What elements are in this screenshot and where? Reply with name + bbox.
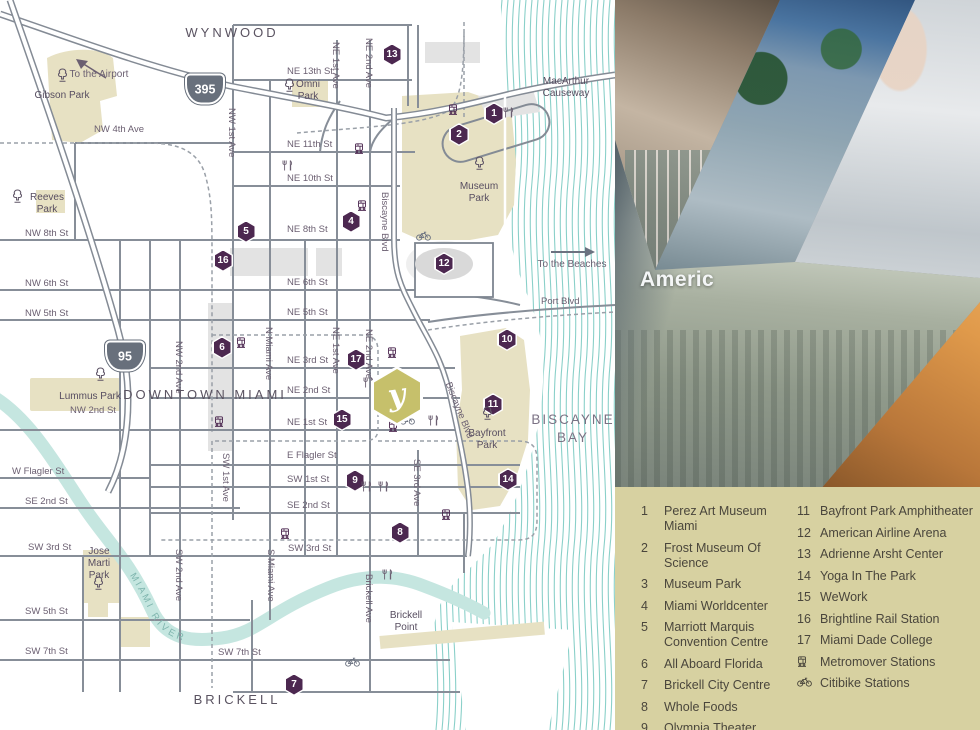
legend-item-number: 2 xyxy=(641,541,659,571)
legend-item-label: Yoga In The Park xyxy=(820,569,975,584)
legend-item-label: Miami Worldcenter xyxy=(664,599,791,614)
map-label: MacArthur Causeway xyxy=(543,76,590,100)
legend-column-2: 11Bayfront Park Amphitheater12American A… xyxy=(797,504,975,698)
restaurant-icon xyxy=(281,158,293,176)
map-label: SW 7th St xyxy=(218,648,261,659)
metromover-station-icon xyxy=(448,102,458,120)
interstate-395-shield: 395 xyxy=(185,74,225,105)
legend-item: 3Museum Park xyxy=(641,577,791,592)
map-label: BISCAYNE BAY xyxy=(531,411,614,447)
legend-item: 15WeWork xyxy=(797,590,975,605)
metromover-station-icon xyxy=(797,655,815,670)
legend-panel: 1Perez Art Museum Miami2Frost Museum Of … xyxy=(615,487,980,730)
park-tree-icon xyxy=(92,576,105,596)
map-label: Brickell Ave xyxy=(362,574,373,623)
citibike-icon xyxy=(797,676,815,691)
property-logo-glyph: y xyxy=(386,380,407,412)
map-label: Museum Park xyxy=(460,181,498,205)
map-label: To the Airport xyxy=(70,69,129,81)
legend-item: 6All Aboard Florida xyxy=(641,657,791,672)
map-label: WYNWOOD xyxy=(185,26,278,41)
legend-item-number: 11 xyxy=(797,504,815,519)
legend-item-label: Brickell City Centre xyxy=(664,678,791,693)
map-label: NE 6th St xyxy=(287,278,328,289)
miami-river xyxy=(0,396,484,640)
metromover-station-icon xyxy=(357,198,367,216)
legend-item-number: 3 xyxy=(641,577,659,592)
legend-column-1: 1Perez Art Museum Miami2Frost Museum Of … xyxy=(641,504,791,730)
legend-item: Citibike Stations xyxy=(797,676,975,691)
map-label: NE 3rd St xyxy=(287,356,328,367)
legend-item: Metromover Stations xyxy=(797,655,975,670)
map-label: SW 5th St xyxy=(25,607,68,618)
legend-item-label: Metromover Stations xyxy=(820,655,975,670)
legend-item-number: 1 xyxy=(641,504,659,534)
metromover-station-icon xyxy=(214,414,224,432)
map-label: SE 2nd St xyxy=(287,501,330,512)
legend-item-label: Whole Foods xyxy=(664,700,791,715)
legend-item-number: 15 xyxy=(797,590,815,605)
map-label: Biscayne Blvd xyxy=(378,192,389,252)
restaurant-icon xyxy=(377,479,389,497)
legend-item-number: 5 xyxy=(641,620,659,650)
restaurant-icon xyxy=(381,567,393,585)
map-label: NE 1st Ave xyxy=(329,327,340,374)
legend-item-number: 14 xyxy=(797,569,815,584)
map-label: SW 2nd Ave xyxy=(172,549,183,601)
map-label: NE 8th St xyxy=(287,225,328,236)
map-label: NE 11th St xyxy=(287,140,332,151)
map-label: NW 8th St xyxy=(25,229,68,240)
map-label: Omni Park xyxy=(296,79,320,103)
map-label: S Miami Ave xyxy=(264,549,275,602)
legend-item-number: 9 xyxy=(641,721,659,730)
legend-item-number: 7 xyxy=(641,678,659,693)
legend-item: 16Brightline Rail Station xyxy=(797,612,975,627)
map-label: NE 5th St xyxy=(287,308,328,319)
legend-item: 13Adrienne Arsht Center xyxy=(797,547,975,562)
map-label: NW 1st Ave xyxy=(225,108,236,157)
park-tree-icon xyxy=(56,68,69,88)
map-label: W Flagler St xyxy=(12,467,64,478)
park-tree-icon xyxy=(481,406,494,426)
map-label: Lummus Park xyxy=(59,391,121,403)
photo-collage: Americ xyxy=(615,0,980,490)
map-label: NE 1st St xyxy=(287,418,327,429)
metromover-station-icon xyxy=(236,335,246,353)
interstate-95-shield: 95 xyxy=(105,341,145,372)
legend-item-label: Adrienne Arsht Center xyxy=(820,547,975,562)
legend-item-number: 4 xyxy=(641,599,659,614)
legend-item-label: Citibike Stations xyxy=(820,676,975,691)
legend-item: 9Olympia Theater xyxy=(641,721,791,730)
legend-item: 7Brickell City Centre xyxy=(641,678,791,693)
map-label: Gibson Park xyxy=(34,90,89,102)
park-tree-icon xyxy=(473,156,486,176)
downtown-miami-map: MIAMI RIVER NE 13th StNE 11th StNE 10th … xyxy=(0,0,615,730)
restaurant-icon xyxy=(427,413,439,431)
legend-item: 2Frost Museum Of Science xyxy=(641,541,791,571)
legend-item: 11Bayfront Park Amphitheater xyxy=(797,504,975,519)
park-tree-icon xyxy=(11,189,24,209)
legend-item: 5Marriott Marquis Convention Centre xyxy=(641,620,791,650)
legend-item-number: 6 xyxy=(641,657,659,672)
map-label: NE 13th St xyxy=(287,67,333,78)
legend-item: 17Miami Dade College xyxy=(797,633,975,648)
legend-item-number: 8 xyxy=(641,700,659,715)
map-label: SE 3rd Ave xyxy=(410,459,421,506)
legend-item: 1Perez Art Museum Miami xyxy=(641,504,791,534)
legend-item-label: Olympia Theater xyxy=(664,721,791,730)
legend-item-number: 12 xyxy=(797,526,815,541)
map-label: N Miami Ave xyxy=(262,327,273,380)
legend-item-number: 17 xyxy=(797,633,815,648)
map-label: NE 2nd Ave xyxy=(362,38,373,88)
legend-item: 12American Airline Arena xyxy=(797,526,975,541)
legend-item-label: Bayfront Park Amphitheater xyxy=(820,504,975,519)
metromover-station-icon xyxy=(387,345,397,363)
map-label: Reeves Park xyxy=(30,192,64,216)
map-label: SW 3rd St xyxy=(28,543,71,554)
metromover-station-icon xyxy=(441,507,451,525)
brochure-page: MIAMI RIVER NE 13th StNE 11th StNE 10th … xyxy=(0,0,980,730)
map-label: BRICKELL xyxy=(194,693,281,708)
legend-item-label: All Aboard Florida xyxy=(664,657,791,672)
map-label: SW 7th St xyxy=(25,647,68,658)
map-label: SW 1st Ave xyxy=(219,453,230,502)
legend-item-label: Marriott Marquis Convention Centre xyxy=(664,620,791,650)
arena-sign-text: Americ xyxy=(640,268,714,292)
map-label: To the Beaches xyxy=(538,259,607,271)
metromover-station-icon xyxy=(280,526,290,544)
map-label: NW 5th St xyxy=(25,309,68,320)
metromover-station-icon xyxy=(354,141,364,159)
map-label: SE 2nd St xyxy=(25,497,68,508)
park-tree-icon xyxy=(94,367,107,387)
legend-item-label: Perez Art Museum Miami xyxy=(664,504,791,534)
map-label: Port Blvd xyxy=(541,297,580,308)
map-label: NE 10th St xyxy=(287,174,333,185)
map-label: Bayfront Park xyxy=(468,428,505,452)
legend-item: 14Yoga In The Park xyxy=(797,569,975,584)
legend-item-label: Frost Museum Of Science xyxy=(664,541,791,571)
map-label: DOWNTOWN MIAMI xyxy=(123,388,287,403)
map-label: SW 1st St xyxy=(287,475,329,486)
legend-item-label: Brightline Rail Station xyxy=(820,612,975,627)
legend-item-label: WeWork xyxy=(820,590,975,605)
restaurant-icon xyxy=(502,105,514,123)
map-label: SW 3rd St xyxy=(288,544,331,555)
legend-item: 4Miami Worldcenter xyxy=(641,599,791,614)
citibike-icon xyxy=(345,654,360,672)
restaurant-icon xyxy=(360,479,372,497)
park-tree-icon xyxy=(283,78,296,98)
legend-item-number: 13 xyxy=(797,547,815,562)
map-label: E Flagler St xyxy=(287,451,337,462)
citibike-icon xyxy=(416,228,431,246)
map-label: NW 6th St xyxy=(25,279,68,290)
legend-item: 8Whole Foods xyxy=(641,700,791,715)
map-label: NW 2nd St xyxy=(70,406,116,417)
map-label: NE 2nd St xyxy=(287,386,330,397)
map-label: NW 2nd Ave xyxy=(172,341,183,394)
map-label: Brickell Point xyxy=(390,610,422,634)
map-label: NE 1st Ave xyxy=(329,42,340,89)
map-label: NW 4th Ave xyxy=(94,125,144,136)
legend-item-number: 16 xyxy=(797,612,815,627)
legend-item-label: Museum Park xyxy=(664,577,791,592)
property-logo-hexagon-fill: y xyxy=(374,369,420,423)
legend-item-label: American Airline Arena xyxy=(820,526,975,541)
legend-item-label: Miami Dade College xyxy=(820,633,975,648)
